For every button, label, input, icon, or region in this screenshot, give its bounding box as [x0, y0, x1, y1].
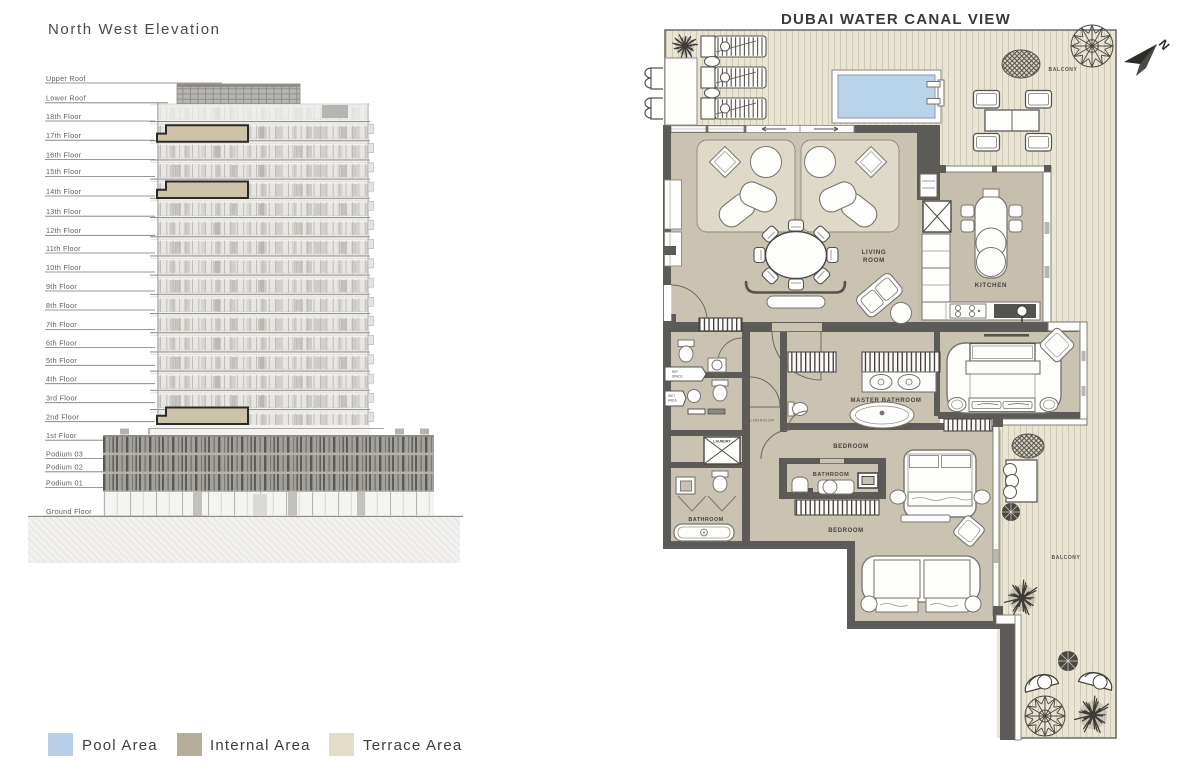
svg-text:7th Floor: 7th Floor	[46, 320, 77, 329]
svg-text:Internal Area: Internal Area	[210, 737, 311, 754]
svg-text:LIVING: LIVING	[862, 249, 887, 256]
svg-text:2nd Floor: 2nd Floor	[46, 413, 79, 422]
svg-text:KITCHEN: KITCHEN	[975, 282, 1007, 289]
svg-text:Podium 01: Podium 01	[46, 478, 83, 487]
svg-text:12th Floor: 12th Floor	[46, 226, 82, 235]
svg-text:6th Floor: 6th Floor	[46, 338, 77, 347]
svg-text:10th Floor: 10th Floor	[46, 263, 82, 272]
svg-text:BALCONY: BALCONY	[1052, 555, 1081, 561]
svg-text:ROOM: ROOM	[863, 257, 885, 264]
svg-text:BEDROOM: BEDROOM	[828, 528, 864, 534]
svg-text:16th Floor: 16th Floor	[46, 150, 82, 159]
svg-text:Pool Area: Pool Area	[82, 737, 158, 754]
svg-text:Lower Roof: Lower Roof	[46, 94, 86, 103]
svg-text:BEDROOM: BEDROOM	[833, 444, 869, 450]
svg-text:BATHROOM: BATHROOM	[688, 517, 723, 523]
svg-text:SPACE: SPACE	[672, 375, 683, 379]
svg-text:Podium 03: Podium 03	[46, 449, 83, 458]
svg-text:North West Elevation: North West Elevation	[48, 21, 221, 38]
svg-text:1st Floor: 1st Floor	[46, 431, 77, 440]
svg-text:AREA: AREA	[668, 399, 678, 403]
svg-text:5th Floor: 5th Floor	[46, 356, 77, 365]
svg-text:15th Floor: 15th Floor	[46, 167, 82, 176]
svg-text:9th Floor: 9th Floor	[46, 282, 77, 291]
svg-text:14th Floor: 14th Floor	[46, 187, 82, 196]
svg-text:REF: REF	[672, 370, 678, 374]
svg-text:BATHROOM: BATHROOM	[813, 472, 850, 478]
svg-text:Podium 02: Podium 02	[46, 463, 83, 472]
svg-text:Terrace Area: Terrace Area	[363, 737, 462, 754]
svg-text:BALCONY: BALCONY	[1049, 67, 1078, 73]
svg-text:3rd Floor: 3rd Floor	[46, 394, 78, 403]
svg-text:CORRIDOR: CORRIDOR	[750, 418, 775, 423]
svg-text:8th Floor: 8th Floor	[46, 301, 77, 310]
svg-text:13th Floor: 13th Floor	[46, 207, 82, 216]
svg-text:DUBAI WATER CANAL VIEW: DUBAI WATER CANAL VIEW	[781, 11, 1011, 28]
svg-text:Ground Floor: Ground Floor	[46, 507, 92, 516]
svg-text:4th Floor: 4th Floor	[46, 375, 77, 384]
svg-text:WET: WET	[668, 394, 675, 398]
svg-text:11th Floor: 11th Floor	[46, 244, 81, 253]
svg-text:LAUNDRY: LAUNDRY	[713, 440, 731, 444]
svg-text:17th Floor: 17th Floor	[46, 131, 82, 140]
svg-text:18th Floor: 18th Floor	[46, 112, 82, 121]
svg-text:Upper Roof: Upper Roof	[46, 74, 86, 83]
